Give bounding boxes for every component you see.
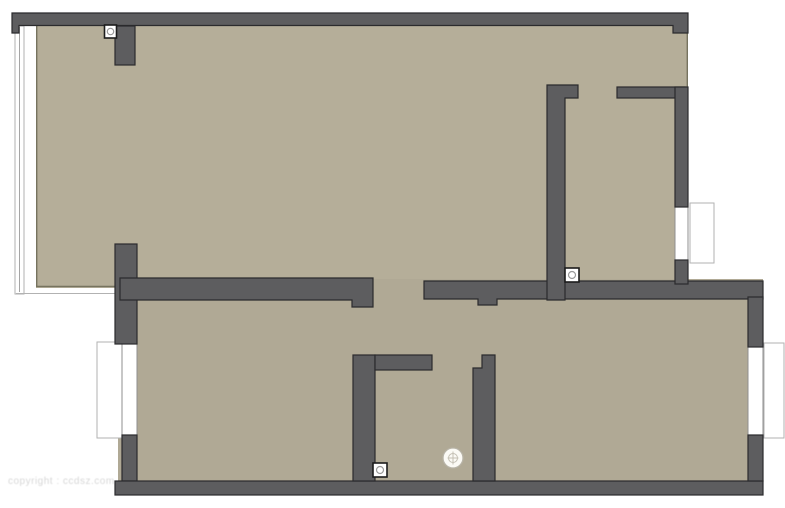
lower-right-window-frame (764, 343, 784, 438)
bedroom-upper-right-right-wall-upper (675, 87, 688, 207)
floor-lower-rooms (118, 279, 763, 495)
floor-plan-canvas: copyright : ccdsz.com (0, 0, 785, 508)
bathroom-right-wall (473, 355, 495, 481)
bathroom-top-wall (375, 355, 432, 370)
right-wall-lower-upper-piece (748, 297, 763, 347)
lower-left-window-frame (97, 342, 122, 438)
lower-right-window-opening (748, 347, 763, 435)
outlet-icon-1 (105, 25, 117, 38)
upper-right-window-opening (675, 207, 688, 260)
lower-left-window-opening (122, 344, 137, 435)
entry-wall-stub (115, 26, 135, 65)
outlet-icon-3-dot (377, 467, 384, 474)
floor-plan-drawing (0, 0, 785, 508)
bedroom-upper-right-right-wall-lower (675, 260, 688, 284)
right-wall-lower-lower-piece (748, 435, 763, 481)
left-wall-lower (122, 435, 137, 481)
light-fixture-icon (443, 448, 463, 468)
outlet-icon-3 (373, 463, 387, 477)
upper-right-window-frame (690, 203, 714, 263)
outlet-icon-1-dot (107, 28, 113, 34)
outlet-icon-2-dot (569, 272, 576, 279)
bathroom-left-wall (353, 355, 375, 481)
outlet-icon-2 (565, 268, 579, 282)
copyright-watermark: copyright : ccdsz.com (8, 476, 115, 487)
exterior-bottom-wall (115, 481, 763, 495)
